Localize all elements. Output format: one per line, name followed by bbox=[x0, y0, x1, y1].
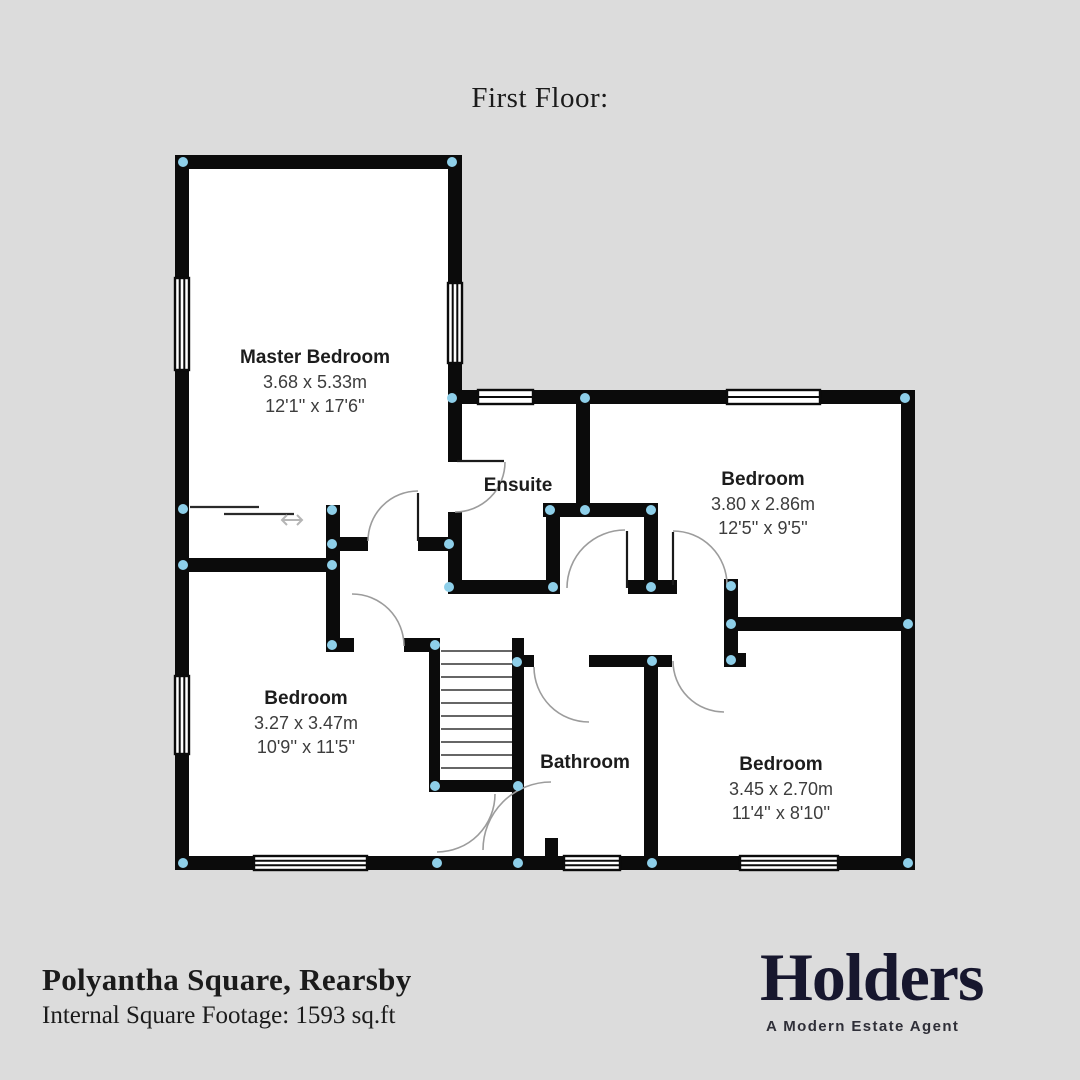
floorplan-page: First Floor: bbox=[0, 0, 1080, 1080]
room-name: Bedroom bbox=[711, 468, 815, 492]
room-dim-metric: 3.45 x 2.70m bbox=[729, 777, 833, 801]
agency-logo: Holders A Modern Estate Agent bbox=[760, 944, 1050, 1035]
room-name: Bedroom bbox=[729, 753, 833, 777]
room-dim-imperial: 12'5'' x 9'5'' bbox=[711, 516, 815, 540]
logo-wordmark: Holders bbox=[760, 944, 1050, 1010]
room-dim-metric: 3.68 x 5.33m bbox=[240, 370, 390, 394]
room-dim-metric: 3.80 x 2.86m bbox=[711, 492, 815, 516]
window bbox=[175, 676, 189, 754]
window bbox=[727, 390, 820, 404]
room-label-bathroom: Bathroom bbox=[540, 751, 630, 775]
room-label-ensuite: Ensuite bbox=[484, 474, 553, 498]
window bbox=[740, 856, 838, 870]
room-name: Master Bedroom bbox=[240, 346, 390, 370]
window bbox=[478, 390, 533, 404]
room-label-bedroom-bottom-right: Bedroom 3.45 x 2.70m 11'4'' x 8'10'' bbox=[729, 753, 833, 825]
room-dim-metric: 3.27 x 3.47m bbox=[254, 711, 358, 735]
room-name: Bedroom bbox=[254, 687, 358, 711]
property-footage: Internal Square Footage: 1593 sq.ft bbox=[42, 1002, 412, 1030]
room-name: Ensuite bbox=[484, 474, 553, 498]
property-info: Polyantha Square, Rearsby Internal Squar… bbox=[42, 962, 412, 1030]
floorplan-drawing bbox=[0, 0, 1080, 1080]
room-dim-imperial: 12'1'' x 17'6'' bbox=[240, 394, 390, 418]
property-address: Polyantha Square, Rearsby bbox=[42, 962, 412, 998]
room-label-bedroom-bottom-left: Bedroom 3.27 x 3.47m 10'9'' x 11'5'' bbox=[254, 687, 358, 759]
logo-tagline: A Modern Estate Agent bbox=[766, 1018, 1050, 1035]
room-label-master-bedroom: Master Bedroom 3.68 x 5.33m 12'1'' x 17'… bbox=[240, 346, 390, 418]
room-dim-imperial: 11'4'' x 8'10'' bbox=[729, 801, 833, 825]
room-label-bedroom-top-right: Bedroom 3.80 x 2.86m 12'5'' x 9'5'' bbox=[711, 468, 815, 540]
window bbox=[448, 283, 462, 363]
window bbox=[175, 278, 189, 370]
window bbox=[564, 856, 620, 870]
window bbox=[254, 856, 367, 870]
room-dim-imperial: 10'9'' x 11'5'' bbox=[254, 735, 358, 759]
room-name: Bathroom bbox=[540, 751, 630, 775]
